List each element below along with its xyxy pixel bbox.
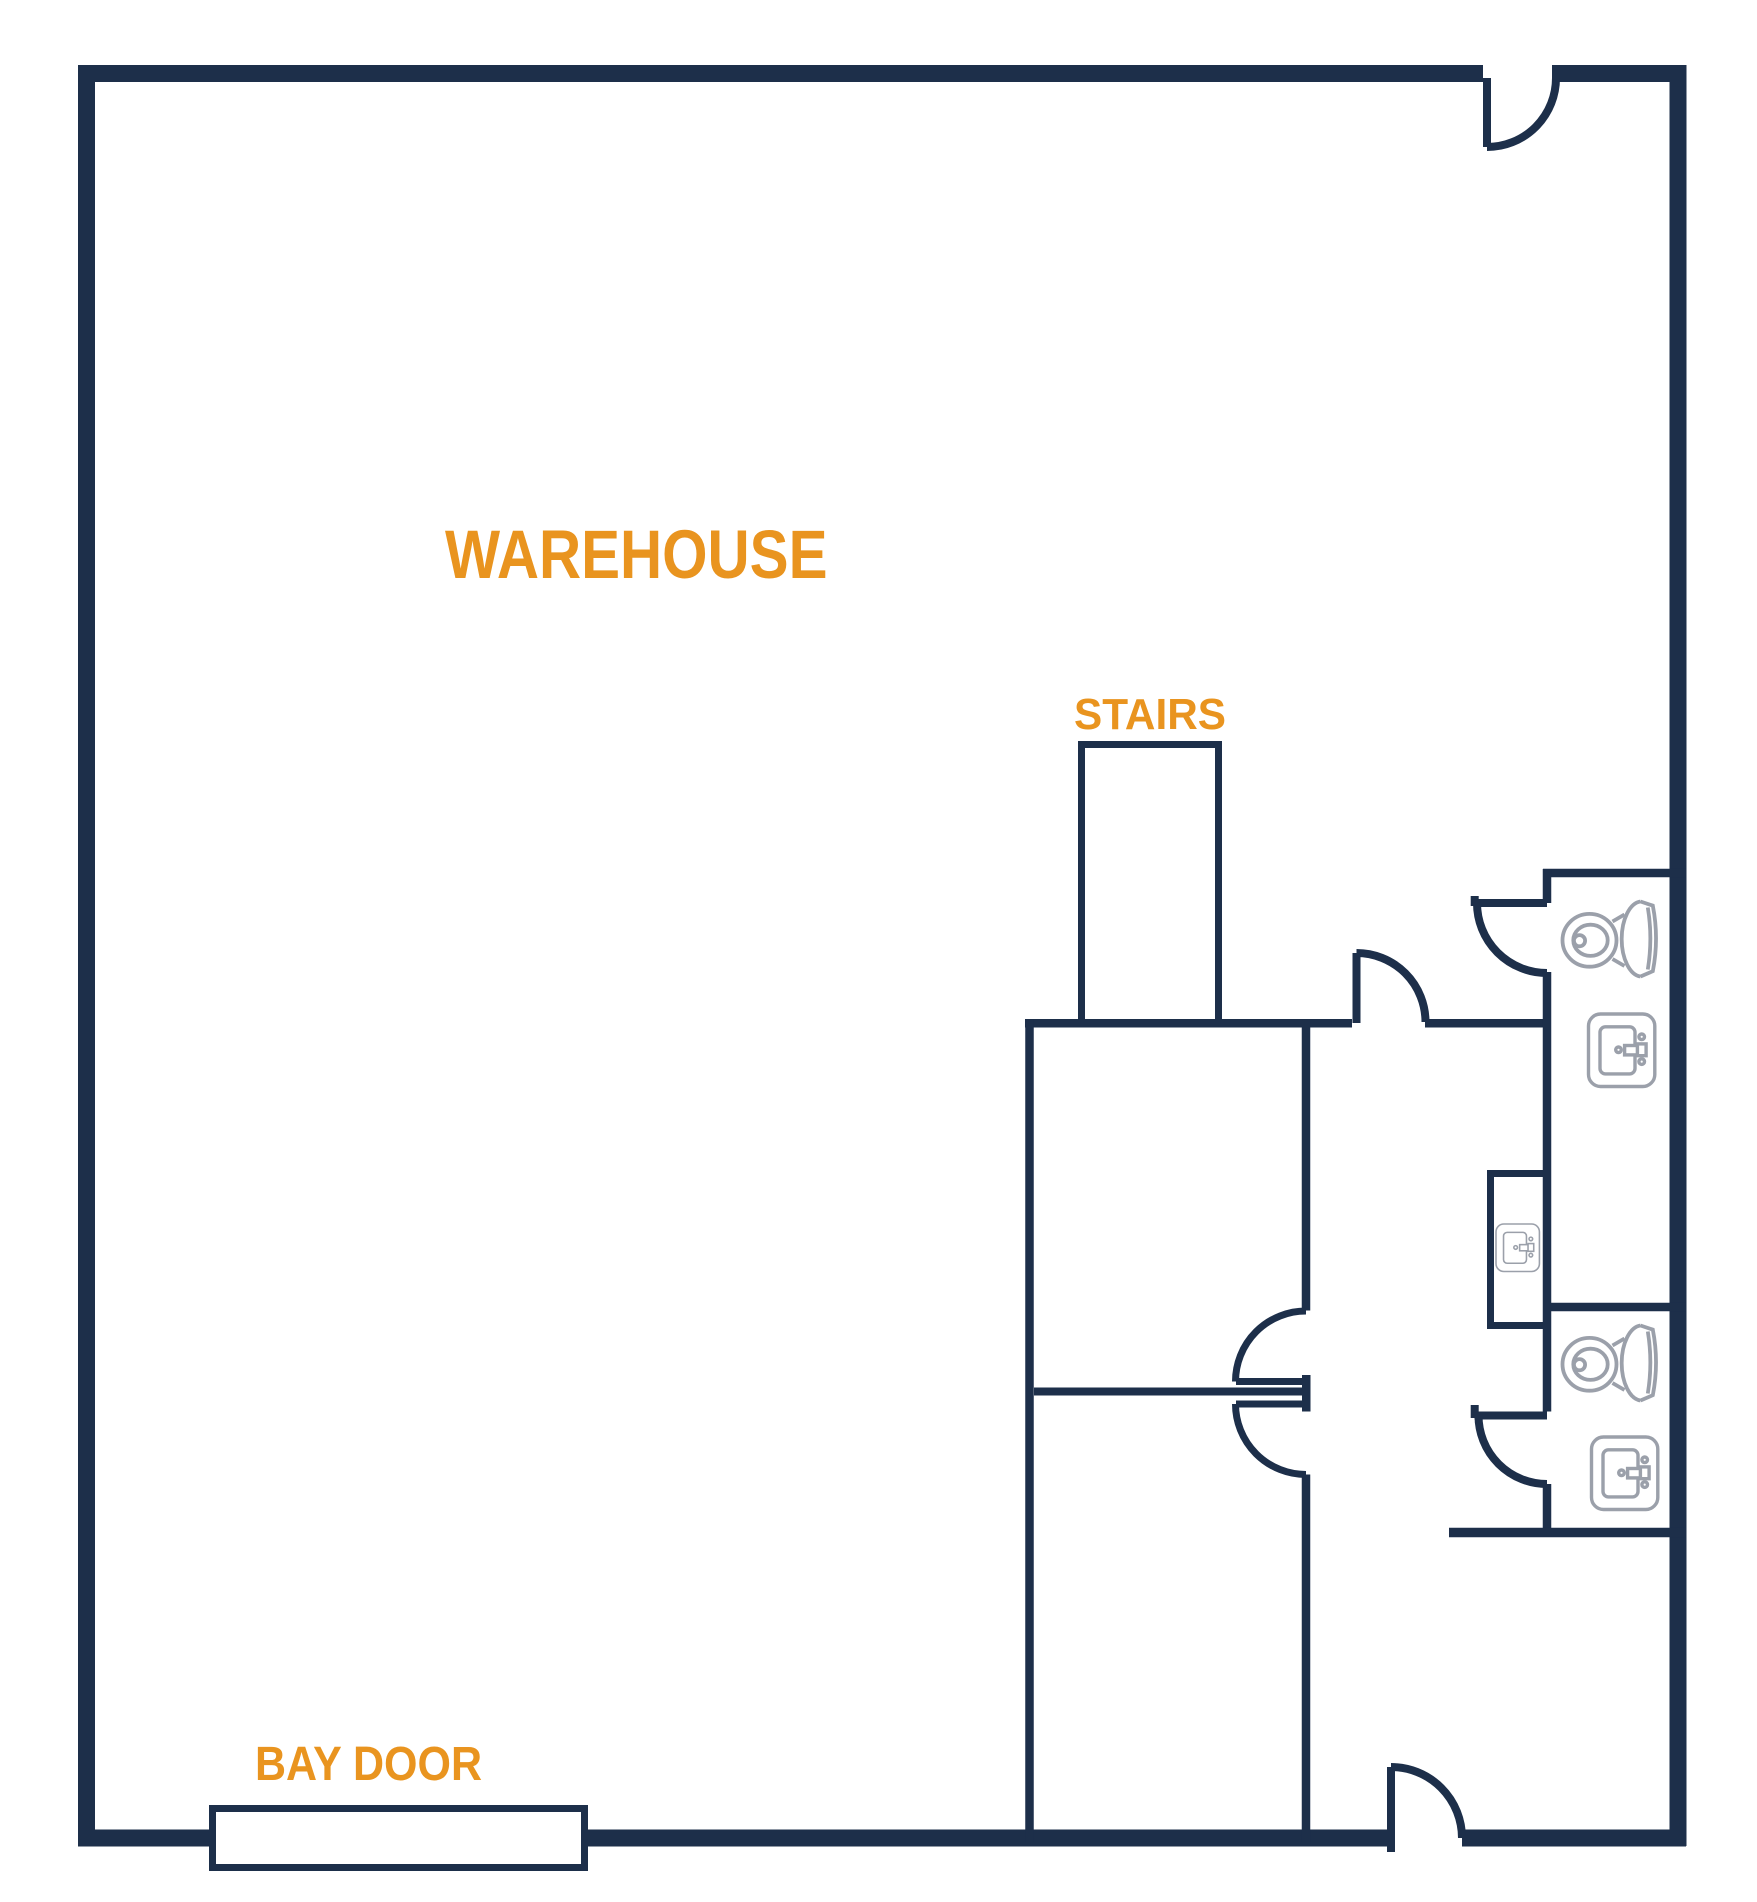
svg-text:WAREHOUSE: WAREHOUSE xyxy=(445,517,828,593)
svg-text:STAIRS: STAIRS xyxy=(1074,690,1226,739)
svg-text:BAY DOOR: BAY DOOR xyxy=(255,1738,482,1791)
